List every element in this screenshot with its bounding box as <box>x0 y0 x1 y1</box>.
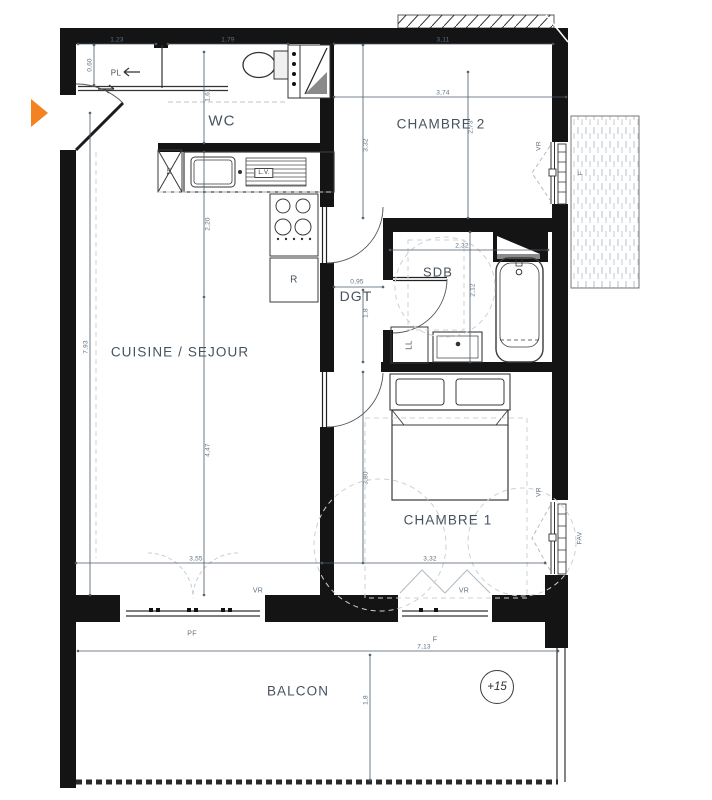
sink-icon <box>191 157 235 187</box>
room-label-wc: WC <box>208 113 235 130</box>
room-label-dgt: DGT <box>340 288 373 304</box>
kitchen <box>158 150 334 302</box>
f-label-panel: F <box>578 171 585 175</box>
dim-pl-depth: 0,60 <box>87 58 94 71</box>
f-label-balcon: F <box>433 637 438 644</box>
fav-label: FAV <box>577 532 584 545</box>
toilet-icon <box>243 53 275 78</box>
exterior-window-panel <box>571 116 639 288</box>
bed-icon <box>390 374 510 500</box>
fridge-label: R <box>290 275 298 286</box>
room-label-cuisine-sejour: CUISINE / SEJOUR <box>111 345 249 360</box>
dim-ch2-left: 3,32 <box>363 138 370 151</box>
sliding-door-arrow-left <box>124 68 140 76</box>
vr-label-chambre2: VR <box>536 141 543 151</box>
dim-ch2-height: 2,73 <box>468 120 475 133</box>
room-label-pl: PL <box>111 69 121 78</box>
electrical-panel-label: TE <box>167 167 173 175</box>
floor-plan: PL WC CHAMBRE 2 CUISINE / SEJOUR SDB DGT… <box>0 0 712 800</box>
dim-sejour-width: 3,55 <box>189 556 202 563</box>
dim-balcon-depth: 1,8 <box>363 695 370 705</box>
dim-ch1-height: 3,80 <box>363 471 370 484</box>
room-label-chambre1: CHAMBRE 1 <box>404 513 493 528</box>
dim-ch1-width: 3,32 <box>423 556 436 563</box>
entrance-arrow-icon <box>31 99 48 127</box>
door-swing-dgt <box>327 207 383 263</box>
dishwasher-label: L.V. <box>254 168 273 178</box>
level-marker: +15 <box>480 670 514 704</box>
pf-label: PF <box>187 631 197 638</box>
dim-sejour-height: 7,93 <box>83 340 90 353</box>
dim-wc-width: 1,79 <box>221 37 234 44</box>
top-hatched-wall-strip <box>398 15 554 28</box>
door-swing-chambre1 <box>327 373 383 427</box>
dim-sdb-height: 2,12 <box>470 283 477 296</box>
dim-balcon-width: 7,13 <box>417 644 430 651</box>
bathtub-icon <box>496 258 543 362</box>
dim-sejour-inner: 4,47 <box>205 443 212 456</box>
dim-dgt-width: 0,95 <box>350 279 363 286</box>
dim-dgt-height: 1,8 <box>363 308 370 318</box>
dim-wc-depth: 1,61 <box>205 88 212 101</box>
dim-kitchen-depth: 2,20 <box>205 217 212 230</box>
room-label-balcon: BALCON <box>267 684 329 699</box>
washing-machine-label: LL <box>405 340 414 350</box>
vr-label-chambre1-right: VR <box>536 487 543 497</box>
dim-ch2-width: 3,74 <box>436 90 449 97</box>
dim-sdb-width: 2,32 <box>455 243 468 250</box>
entry-door-leaf <box>76 103 123 150</box>
balcony <box>76 648 565 782</box>
door-swing-sdb <box>393 279 447 333</box>
bathroom-fixtures <box>391 258 543 363</box>
wc-fixtures <box>168 45 330 102</box>
vr-label-sejour: VR <box>253 588 263 595</box>
dim-ch2-top: 3,11 <box>437 37 450 44</box>
level-value: +15 <box>487 681 507 693</box>
vr-label-chambre1-bottom: VR <box>459 588 469 595</box>
dim-pl-width: 1,23 <box>110 37 123 44</box>
room-label-sdb: SDB <box>423 265 453 280</box>
floor-plan-drawing <box>0 0 712 800</box>
